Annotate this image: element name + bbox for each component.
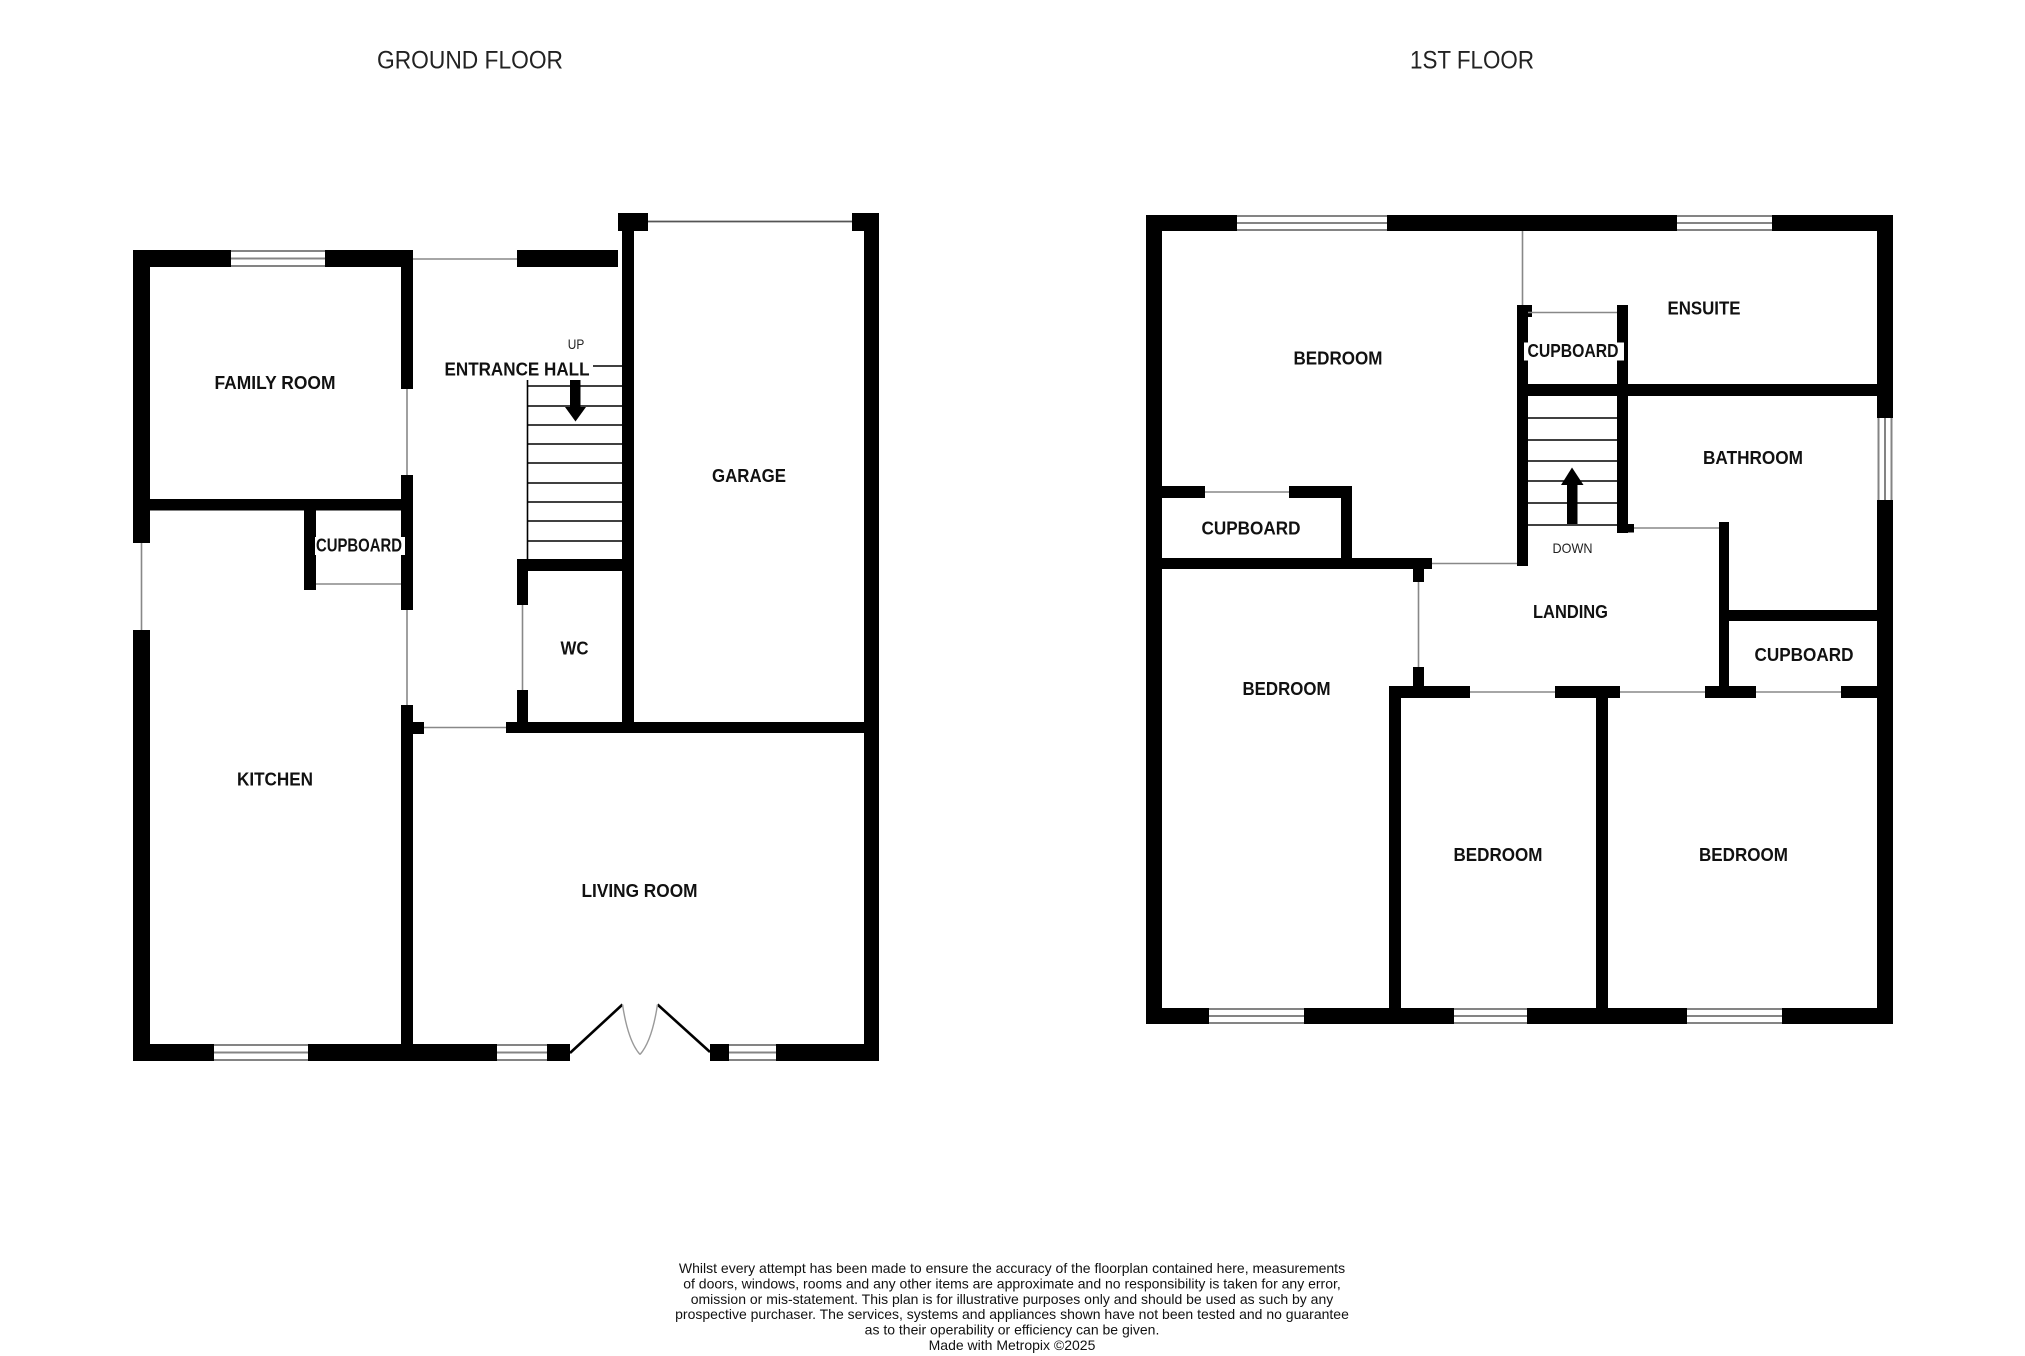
- svg-text:GARAGE: GARAGE: [712, 465, 786, 486]
- svg-text:LANDING: LANDING: [1533, 601, 1608, 622]
- svg-text:CUPBOARD: CUPBOARD: [316, 535, 402, 556]
- svg-text:GROUND FLOOR: GROUND FLOOR: [377, 47, 563, 75]
- svg-text:KITCHEN: KITCHEN: [237, 769, 313, 790]
- svg-text:Whilst every attempt has been: Whilst every attempt has been made to en…: [679, 1260, 1345, 1276]
- svg-text:prospective purchaser. The ser: prospective purchaser. The services, sys…: [675, 1306, 1349, 1322]
- svg-text:BATHROOM: BATHROOM: [1703, 447, 1803, 468]
- svg-text:of doors, windows, rooms and a: of doors, windows, rooms and any other i…: [683, 1275, 1341, 1291]
- svg-text:ENTRANCE HALL: ENTRANCE HALL: [445, 359, 590, 380]
- svg-text:WC: WC: [561, 638, 589, 659]
- svg-text:CUPBOARD: CUPBOARD: [1202, 518, 1301, 539]
- svg-text:Made with Metropix ©2025: Made with Metropix ©2025: [929, 1337, 1096, 1353]
- svg-text:omission or mis-statement. Thi: omission or mis-statement. This plan is …: [691, 1291, 1334, 1307]
- svg-text:CUPBOARD: CUPBOARD: [1528, 340, 1619, 361]
- svg-text:UP: UP: [568, 336, 585, 352]
- svg-text:BEDROOM: BEDROOM: [1699, 844, 1788, 865]
- svg-text:DOWN: DOWN: [1553, 540, 1593, 556]
- svg-text:CUPBOARD: CUPBOARD: [1755, 644, 1854, 665]
- svg-text:BEDROOM: BEDROOM: [1294, 348, 1383, 369]
- svg-text:FAMILY ROOM: FAMILY ROOM: [215, 372, 336, 393]
- svg-text:ENSUITE: ENSUITE: [1668, 298, 1741, 319]
- svg-text:LIVING ROOM: LIVING ROOM: [582, 880, 698, 901]
- svg-text:1ST FLOOR: 1ST FLOOR: [1410, 47, 1534, 75]
- svg-text:as to their operability or eff: as to their operability or efficiency ca…: [865, 1322, 1160, 1338]
- svg-text:BEDROOM: BEDROOM: [1243, 678, 1331, 699]
- svg-text:BEDROOM: BEDROOM: [1454, 844, 1543, 865]
